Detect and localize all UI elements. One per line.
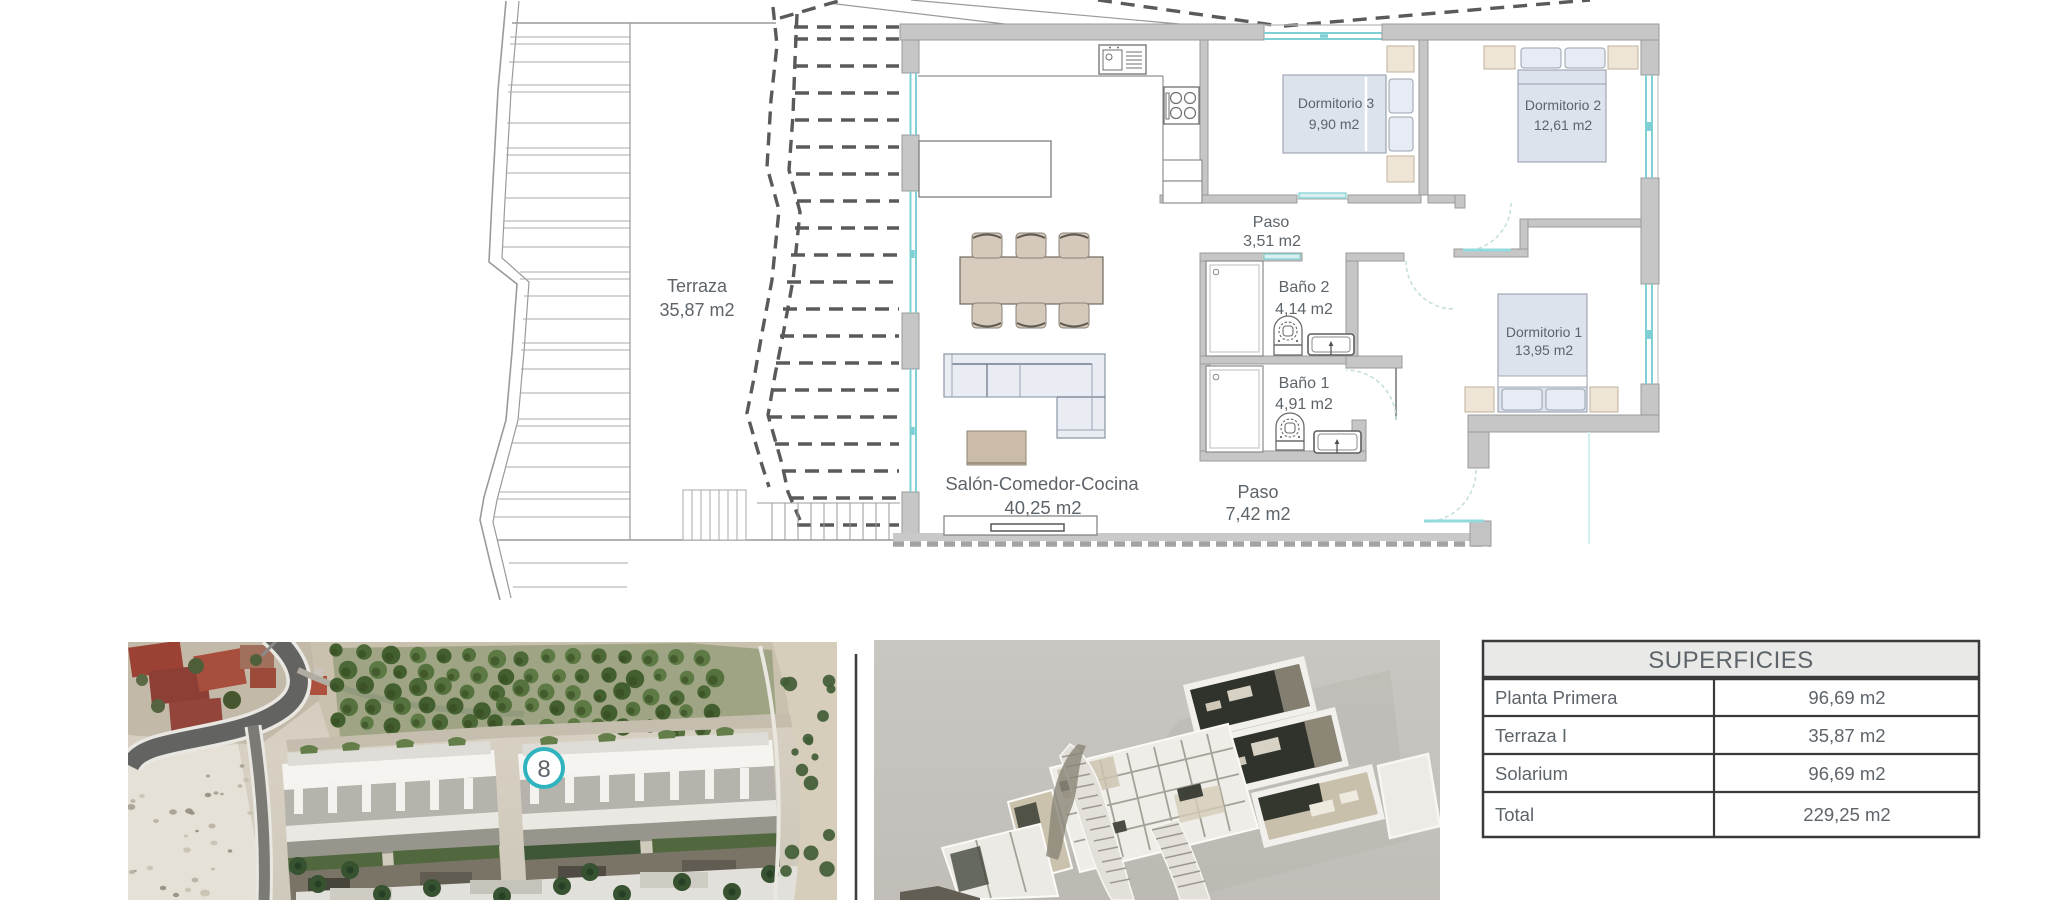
svg-text:Terraza I: Terraza I bbox=[1495, 725, 1567, 746]
svg-text:Baño 1: Baño 1 bbox=[1279, 375, 1330, 392]
svg-text:7,42 m2: 7,42 m2 bbox=[1225, 504, 1290, 524]
svg-text:96,69 m2: 96,69 m2 bbox=[1808, 687, 1885, 708]
svg-text:35,87 m2: 35,87 m2 bbox=[1808, 725, 1885, 746]
svg-text:96,69 m2: 96,69 m2 bbox=[1808, 763, 1885, 784]
svg-text:Planta Primera: Planta Primera bbox=[1495, 687, 1618, 708]
svg-text:4,91 m2: 4,91 m2 bbox=[1275, 396, 1333, 413]
svg-text:SUPERFICIES: SUPERFICIES bbox=[1648, 647, 1814, 674]
svg-text:Paso: Paso bbox=[1253, 214, 1290, 231]
svg-text:13,95 m2: 13,95 m2 bbox=[1515, 342, 1574, 358]
svg-text:8: 8 bbox=[537, 756, 550, 783]
svg-text:35,87 m2: 35,87 m2 bbox=[659, 300, 734, 320]
svg-text:Dormitorio 1: Dormitorio 1 bbox=[1506, 324, 1582, 340]
svg-text:Baño 2: Baño 2 bbox=[1279, 279, 1330, 296]
svg-text:12,61 m2: 12,61 m2 bbox=[1534, 117, 1593, 133]
svg-text:40,25 m2: 40,25 m2 bbox=[1004, 497, 1081, 518]
svg-text:Dormitorio 3: Dormitorio 3 bbox=[1298, 95, 1374, 111]
svg-text:Solarium: Solarium bbox=[1495, 763, 1568, 784]
svg-text:Paso: Paso bbox=[1237, 482, 1278, 502]
svg-text:229,25 m2: 229,25 m2 bbox=[1803, 804, 1890, 825]
svg-text:Salón-Comedor-Cocina: Salón-Comedor-Cocina bbox=[945, 473, 1139, 494]
svg-text:3,51 m2: 3,51 m2 bbox=[1243, 233, 1301, 250]
svg-text:9,90 m2: 9,90 m2 bbox=[1309, 116, 1360, 132]
svg-text:4,14 m2: 4,14 m2 bbox=[1275, 301, 1333, 318]
svg-text:Dormitorio 2: Dormitorio 2 bbox=[1525, 97, 1601, 113]
svg-text:Terraza: Terraza bbox=[667, 276, 728, 296]
svg-text:Total: Total bbox=[1495, 804, 1534, 825]
